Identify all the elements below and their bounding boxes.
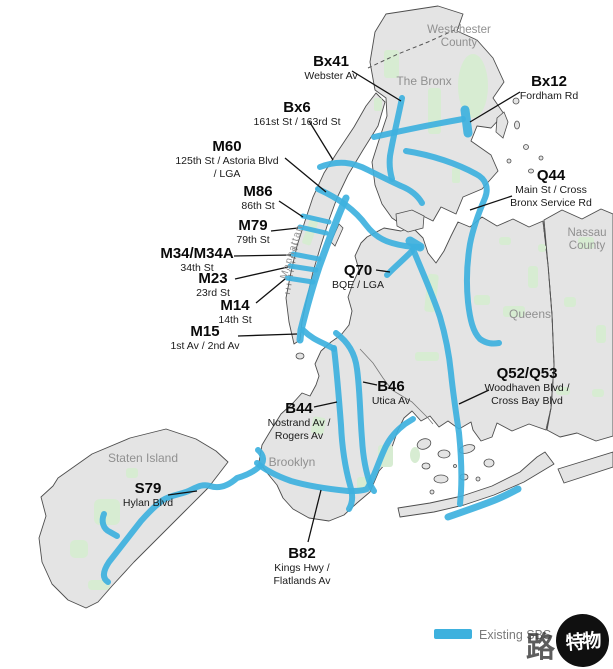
route-label-m14: M14 14th St [218,298,251,327]
route-label-m23: M23 23rd St [196,271,230,300]
route-label-bx12: Bx12 Fordham Rd [520,74,578,103]
watermark-logo: 路 特物 [522,612,613,669]
route-line-m60-lga-terminal [410,241,420,247]
region-label-queens: Queens [509,308,551,321]
route-label-m15: M15 1st Av / 2nd Av [170,324,239,353]
route-label-q52-q53: Q52/Q53 Woodhaven Blvd / Cross Bay Blvd [484,366,569,407]
jamaica-bay-islands [410,437,494,494]
sound-island [507,159,511,163]
region-label-bronx: The Bronx [396,75,451,88]
sound-island [539,156,543,160]
region-label-nassau: Nassau County [568,227,607,253]
route-label-q70: Q70 BQE / LGA [332,263,384,292]
route-label-b46: B46 Utica Av [372,379,410,408]
nyc-sbs-route-map: Westchester County The Bronx Nassau Coun… [0,0,613,669]
sound-island [524,145,529,150]
route-label-b44: B44 Nostrand Av / Rogers Av [268,401,331,442]
route-label-q44: Q44 Main St / Cross Bronx Service Rd [510,168,592,209]
watermark-outer-text: 路 [526,624,555,666]
region-label-westchester: Westchester County [427,24,491,50]
route-line-bx12-terminal [465,110,468,133]
region-label-staten-island: Staten Island [108,452,178,465]
watermark-circle: 特物 [554,612,611,669]
sound-island [515,121,520,129]
governors-island [296,353,304,359]
route-label-s79: S79 Hylan Blvd [123,481,173,510]
route-label-m86: M86 86th St [241,184,274,213]
sound-island [513,98,519,104]
watermark-inner-text: 特物 [564,626,600,656]
route-label-b82: B82 Kings Hwy / Flatlands Av [273,546,330,587]
route-label-m79: M79 79th St [236,218,269,247]
route-label-bx6: Bx6 161st St / 163rd St [254,100,341,129]
route-label-m60: M60 125th St / Astoria Blvd / LGA [175,139,278,180]
route-line-williamsburg-connector [303,330,334,349]
region-label-brooklyn: Brooklyn [269,456,316,469]
nassau-barrier-island [558,452,613,483]
route-label-bx41: Bx41 Webster Av [304,54,357,83]
